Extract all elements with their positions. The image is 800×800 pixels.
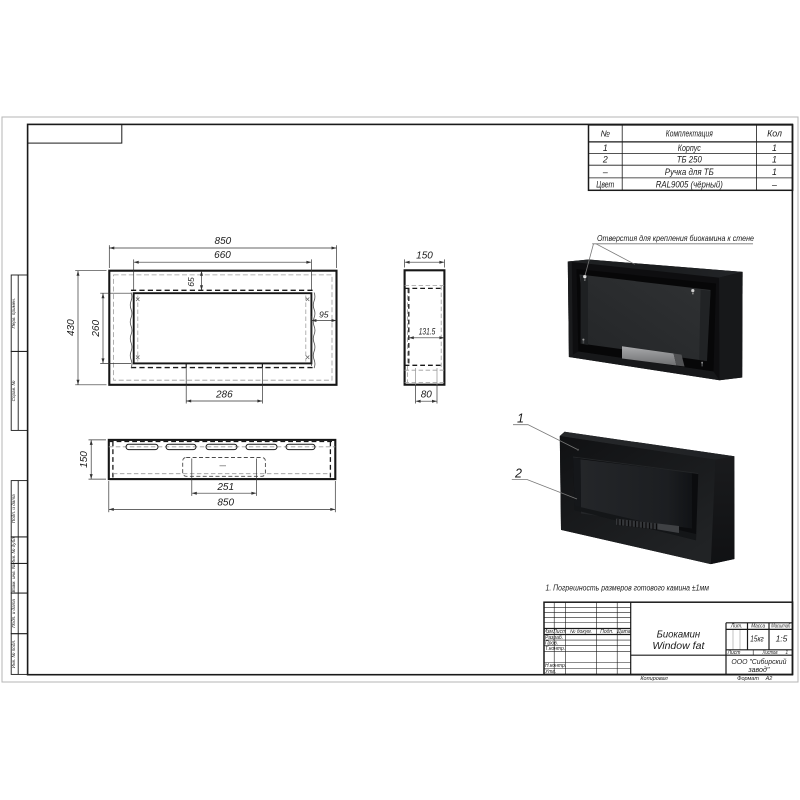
svg-text:–: – [771,180,777,190]
svg-text:Формат: Формат [737,676,759,682]
svg-text:850: 850 [215,236,232,247]
svg-text:15кг: 15кг [750,633,764,643]
svg-text:95: 95 [319,310,329,320]
svg-text:Справ. №: Справ. № [11,380,16,401]
svg-text:Взам. инв. №: Взам. инв. № [11,564,16,592]
svg-text:–: – [602,167,608,177]
svg-text:Перв. примен.: Перв. примен. [11,298,16,329]
svg-text:1: 1 [785,650,788,656]
svg-text:Отверстия для крепления биокам: Отверстия для крепления биокамина к стен… [597,233,754,243]
svg-text:80: 80 [421,390,433,401]
svg-text:Подп. и дата: Подп. и дата [11,494,16,523]
svg-text:RAL9005 (чёрный): RAL9005 (чёрный) [656,180,723,190]
svg-text:А2: А2 [765,676,773,682]
svg-text:Дата: Дата [616,629,630,635]
svg-text:1. Погрешность размеров готово: 1. Погрешность размеров готового камина … [546,582,710,592]
svg-text:1: 1 [603,143,608,153]
svg-text:286: 286 [215,390,233,401]
svg-text:1: 1 [517,411,524,425]
svg-text:150: 150 [416,250,433,261]
svg-text:430: 430 [66,319,77,336]
svg-text:Масштаб: Масштаб [771,624,790,630]
svg-text:Лист: Лист [727,650,741,656]
svg-text:Инв. № дубл.: Инв. № дубл. [11,536,16,564]
svg-text:850: 850 [217,498,234,509]
svg-text:Цвет: Цвет [596,180,614,190]
svg-text:Копировал: Копировал [640,676,667,682]
svg-text:№ докум.: № докум. [570,629,592,635]
svg-text:Ручка для ТБ: Ручка для ТБ [665,167,714,177]
svg-text:Масса: Масса [751,624,765,630]
svg-text:251: 251 [216,482,234,493]
svg-text:1: 1 [772,155,777,165]
svg-text:завод": завод" [747,665,770,674]
svg-text:Корпус: Корпус [678,143,701,153]
svg-text:Т.контр.: Т.контр. [545,646,565,652]
svg-text:Утв.: Утв. [545,669,556,675]
svg-text:Подп. и дата: Подп. и дата [11,599,16,628]
svg-text:2: 2 [514,466,522,480]
svg-text:150: 150 [79,451,90,468]
svg-text:Листов: Листов [762,650,778,656]
svg-text:2: 2 [602,155,608,165]
svg-text:1: 1 [772,143,777,153]
svg-text:1:5: 1:5 [776,633,788,643]
svg-text:Инв. № подл.: Инв. № подл. [11,640,16,669]
svg-text:1: 1 [772,167,777,177]
svg-text:65: 65 [186,277,196,287]
svg-text:Кол: Кол [767,129,782,139]
svg-text:Лит.: Лит. [730,624,743,630]
svg-text:131.5: 131.5 [419,327,436,338]
svg-text:260: 260 [91,320,102,338]
svg-text:ТБ 250: ТБ 250 [677,155,702,165]
svg-text:Комплектация: Комплектация [666,129,713,139]
svg-text:№: № [601,129,611,139]
svg-text:660: 660 [214,250,231,261]
svg-text:Биокамин: Биокамин [657,630,701,641]
svg-text:Window fat: Window fat [652,641,705,652]
svg-text:Подп.: Подп. [600,629,613,635]
